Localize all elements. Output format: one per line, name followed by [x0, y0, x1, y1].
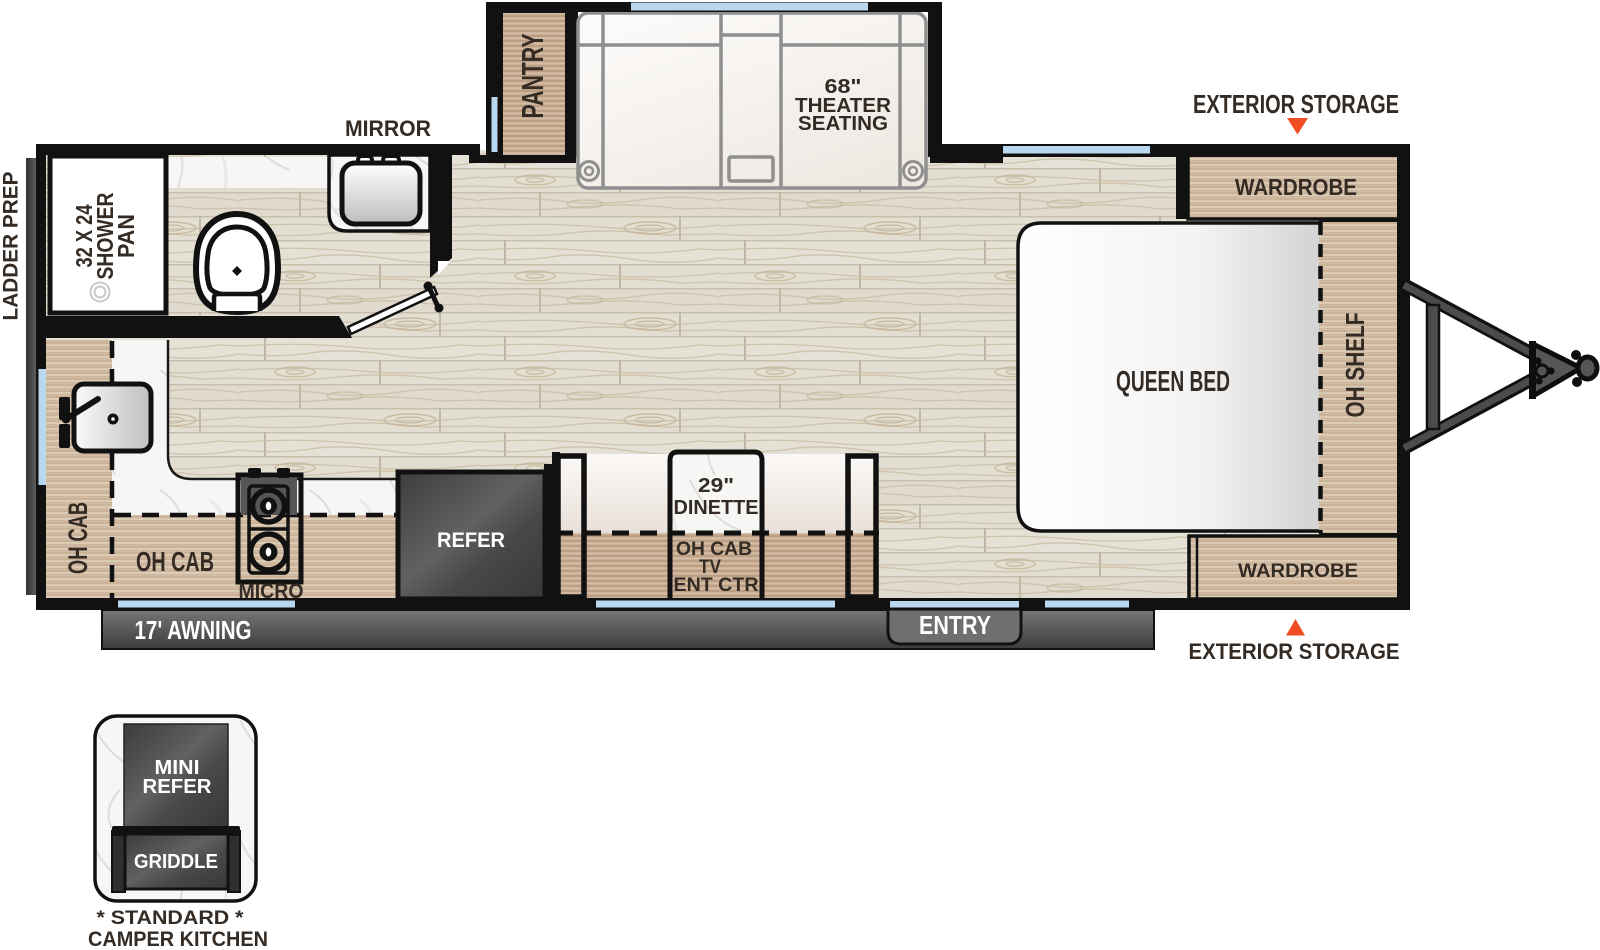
- svg-text:OH CAB: OH CAB: [136, 546, 214, 577]
- svg-text:PAN: PAN: [113, 214, 139, 258]
- svg-text:* STANDARD *: * STANDARD *: [97, 908, 245, 929]
- svg-text:DINETTE: DINETTE: [674, 497, 759, 519]
- svg-text:WARDROBE: WARDROBE: [1235, 174, 1357, 200]
- svg-text:EXTERIOR STORAGE: EXTERIOR STORAGE: [1189, 639, 1400, 664]
- svg-text:CAMPER KITCHEN: CAMPER KITCHEN: [88, 928, 268, 950]
- svg-text:ENTRY: ENTRY: [919, 610, 991, 640]
- svg-text:EXTERIOR STORAGE: EXTERIOR STORAGE: [1193, 89, 1399, 119]
- svg-text:OH CAB: OH CAB: [63, 502, 93, 574]
- svg-text:29": 29": [698, 475, 734, 497]
- svg-text:LADDER PREP: LADDER PREP: [0, 172, 23, 321]
- svg-text:MIRROR: MIRROR: [345, 116, 431, 141]
- svg-text:REFER: REFER: [437, 529, 505, 552]
- svg-text:ENT CTR: ENT CTR: [674, 575, 759, 596]
- svg-text:WARDROBE: WARDROBE: [1238, 561, 1358, 582]
- svg-text:PANTRY: PANTRY: [515, 33, 550, 118]
- svg-text:17' AWNING: 17' AWNING: [135, 615, 252, 645]
- svg-text:QUEEN BED: QUEEN BED: [1116, 366, 1230, 398]
- svg-text:MICRO: MICRO: [239, 580, 304, 603]
- svg-text:SEATING: SEATING: [798, 113, 888, 135]
- svg-text:GRIDDLE: GRIDDLE: [134, 851, 218, 873]
- svg-text:OH SHELF: OH SHELF: [1340, 313, 1370, 418]
- svg-text:REFER: REFER: [143, 776, 213, 798]
